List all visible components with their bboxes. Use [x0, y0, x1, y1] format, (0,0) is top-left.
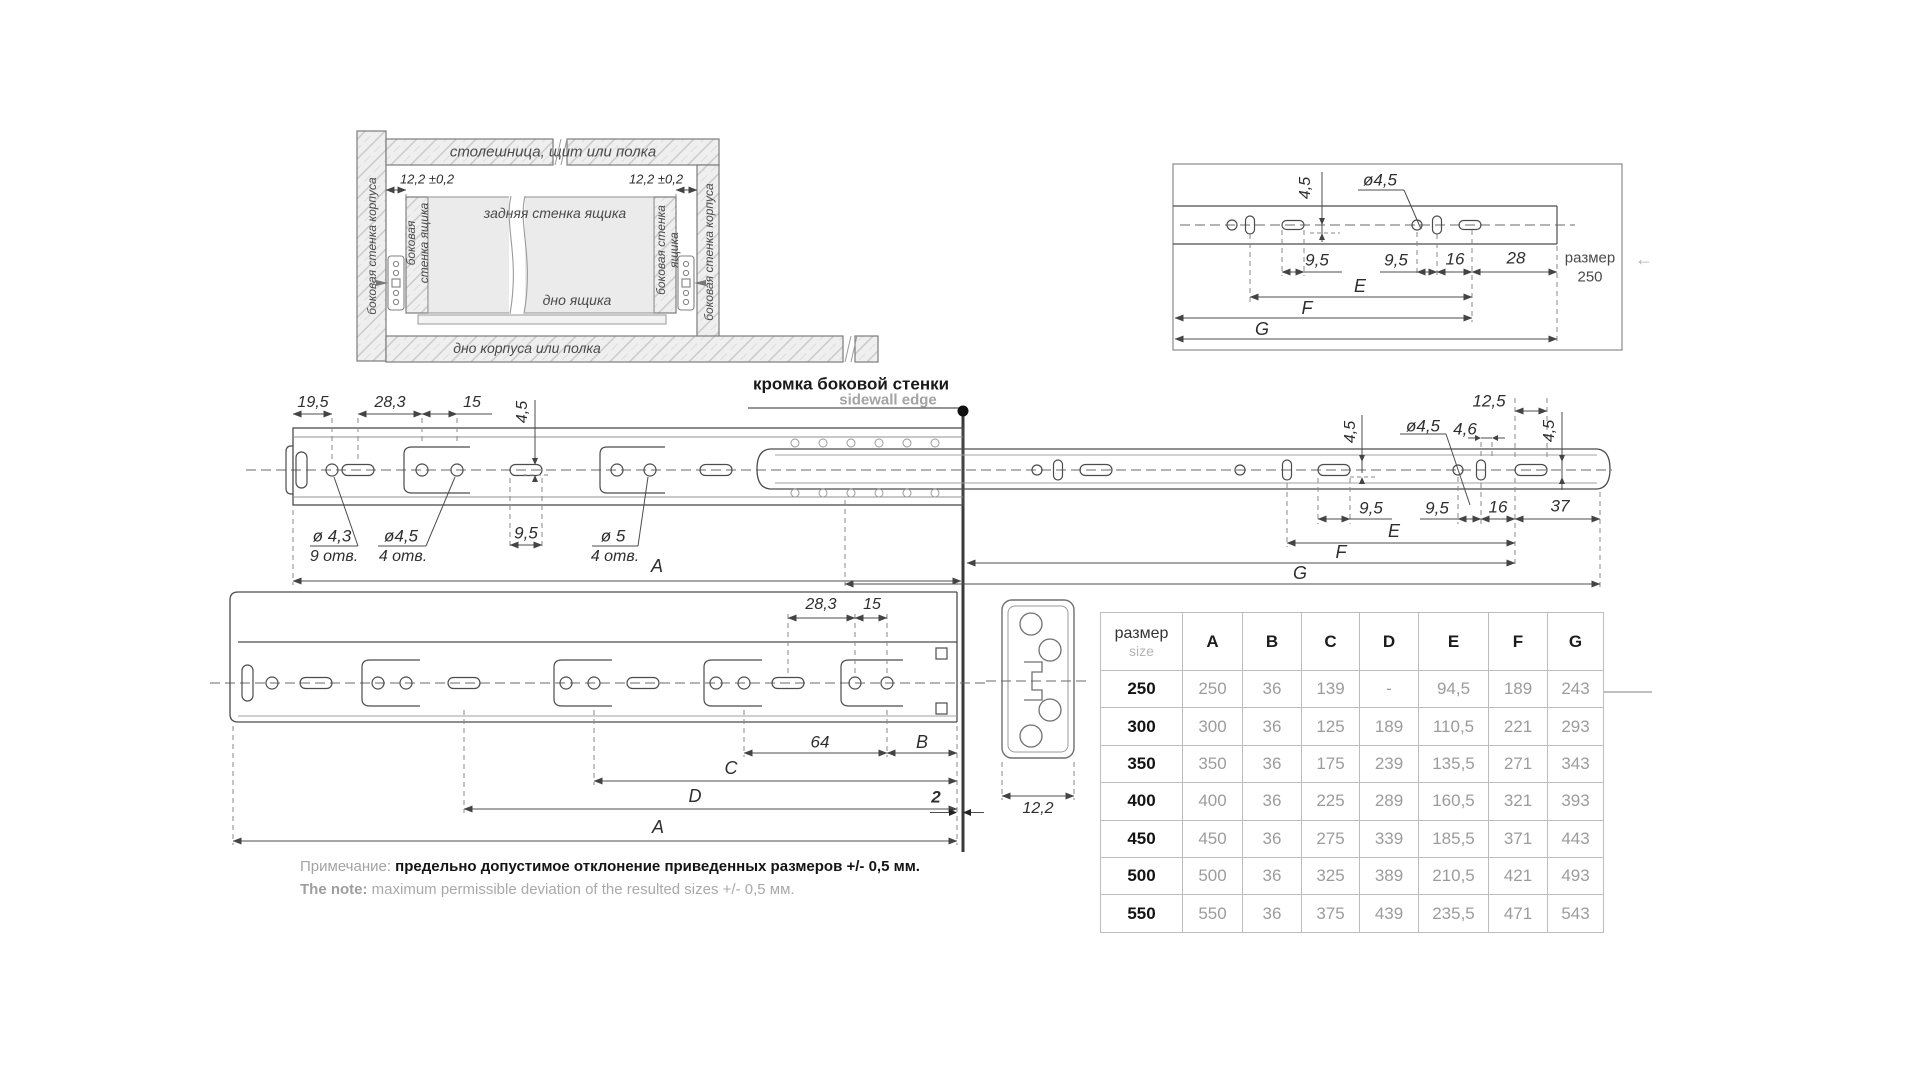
header-size-en: size: [1101, 643, 1182, 659]
cell-a: 250: [1183, 671, 1243, 708]
cell-e: 160,5: [1419, 783, 1489, 820]
table-row: 400 400 36 225 289 160,5 321 393: [1101, 783, 1604, 820]
cell-d: -: [1360, 671, 1419, 708]
detail-size-value: 250: [1577, 270, 1602, 285]
cell-d: 289: [1360, 783, 1419, 820]
cell-a: 450: [1183, 820, 1243, 857]
note-text-ru: предельно допустимое отклонение приведен…: [395, 858, 842, 875]
detail-dim-9-5b: 9,5: [1384, 252, 1408, 269]
cell-c: 175: [1302, 745, 1360, 782]
label-drawer-back: задняя стенка ящика: [484, 206, 626, 220]
open-dim-19-5: 19,5: [297, 395, 328, 411]
table-row: 300 300 36 125 189 110,5 221 293: [1101, 708, 1604, 745]
cell-g: 293: [1548, 708, 1604, 745]
note-text-en: maximum permissible deviation of the res…: [372, 881, 719, 898]
cell-e: 94,5: [1419, 671, 1489, 708]
open-dim-12-5: 12,5: [1472, 393, 1505, 410]
cell-b: 36: [1243, 671, 1302, 708]
table-header-row: размер size A B C D E F G: [1101, 613, 1604, 671]
dim-offset-left: 12,2 ±0,2: [400, 173, 454, 186]
note-label-ru: Примечание:: [300, 858, 391, 875]
open-dim-28-3: 28,3: [374, 395, 405, 411]
cell-size: 250: [1101, 671, 1183, 708]
open-dim-r-dia45: ø4,5: [1406, 418, 1440, 435]
cell-c: 275: [1302, 820, 1360, 857]
cell-c: 125: [1302, 708, 1360, 745]
detail-dim-E: E: [1354, 277, 1366, 295]
open-dim-A: A: [651, 557, 663, 575]
detail-dim-dia45: ø4,5: [1363, 172, 1397, 189]
cell-g: 343: [1548, 745, 1604, 782]
label-drawer-side-left-1: боковая: [405, 221, 417, 266]
cell-g: 393: [1548, 783, 1604, 820]
open-dia-5: ø 5: [601, 528, 626, 545]
open-dim-4-6: 4,6: [1453, 421, 1477, 438]
open-dim-4-5: 4,5: [515, 401, 531, 423]
label-sidewall-edge-ru: кромка боковой стенки: [753, 376, 949, 393]
note-tolerance-en: +/- 0,5 мм.: [723, 881, 795, 898]
cell-d: 439: [1360, 895, 1419, 932]
note-label-en: The note:: [300, 881, 368, 898]
open-dia-4-5: ø4,5: [384, 528, 418, 545]
note-block: Примечание: предельно допустимое отклоне…: [300, 855, 920, 902]
table-row: 550 550 36 375 439 235,5 471 543: [1101, 895, 1604, 932]
cell-e: 235,5: [1419, 895, 1489, 932]
cell-e: 110,5: [1419, 708, 1489, 745]
closed-dim-B: B: [916, 733, 928, 751]
cell-b: 36: [1243, 745, 1302, 782]
cell-e: 135,5: [1419, 745, 1489, 782]
label-cabinet-bottom: дно корпуса или полка: [453, 341, 601, 355]
cell-f: 321: [1489, 783, 1548, 820]
cell-b: 36: [1243, 708, 1302, 745]
open-dim-r-4-5r: 4,5: [1542, 420, 1558, 442]
cell-g: 493: [1548, 857, 1604, 894]
label-sidewall-edge-en: sidewall edge: [839, 393, 937, 408]
label-cabinet-side-right: боковая стенка корпуса: [703, 183, 715, 320]
detail-dim-28: 28: [1507, 250, 1526, 267]
header-size: размер size: [1101, 613, 1183, 671]
detail-dim-4-5: 4,5: [1298, 177, 1314, 199]
table-row: 350 350 36 175 239 135,5 271 343: [1101, 745, 1604, 782]
cell-f: 189: [1489, 671, 1548, 708]
label-drawer-side-left-2: стенка ящика: [418, 203, 430, 284]
cell-a: 550: [1183, 895, 1243, 932]
header-size-ru: размер: [1101, 625, 1182, 643]
cell-g: 243: [1548, 671, 1604, 708]
label-drawer-side-right-1: боковая стенка: [655, 205, 667, 295]
open-dim-G: G: [1293, 564, 1307, 582]
cell-b: 36: [1243, 895, 1302, 932]
label-top-panel: столешница, щит или полка: [450, 145, 656, 160]
open-dim-E: E: [1388, 522, 1400, 540]
cell-size: 500: [1101, 857, 1183, 894]
cell-d: 239: [1360, 745, 1419, 782]
cell-f: 371: [1489, 820, 1548, 857]
header-col-G: G: [1548, 613, 1604, 671]
closed-dim-C: C: [725, 759, 738, 777]
cell-f: 471: [1489, 895, 1548, 932]
header-col-D: D: [1360, 613, 1419, 671]
open-dim-F: F: [1336, 543, 1347, 561]
header-col-E: E: [1419, 613, 1489, 671]
left-arrow-icon: ←: [1635, 250, 1653, 268]
table-row: 450 450 36 275 339 185,5 371 443: [1101, 820, 1604, 857]
profile-dim-12-2: 12,2: [1022, 801, 1053, 817]
cell-c: 225: [1302, 783, 1360, 820]
cell-size: 450: [1101, 820, 1183, 857]
closed-dim-D: D: [689, 787, 702, 805]
closed-dim-gap-2: 2: [931, 789, 940, 806]
technical-drawing-linework: [0, 0, 1920, 1080]
cell-d: 389: [1360, 857, 1419, 894]
cell-c: 375: [1302, 895, 1360, 932]
cell-a: 400: [1183, 783, 1243, 820]
cell-size: 350: [1101, 745, 1183, 782]
open-dim-r-37: 37: [1551, 498, 1570, 515]
label-drawer-bottom: дно ящика: [543, 293, 612, 307]
open-dim-r-9-5a: 9,5: [1359, 500, 1383, 517]
detail-dim-16: 16: [1446, 251, 1465, 268]
open-dim-r-16: 16: [1489, 499, 1508, 516]
open-dim-15: 15: [463, 395, 481, 411]
header-col-B: B: [1243, 613, 1302, 671]
detail-dim-9-5a: 9,5: [1305, 252, 1329, 269]
drawing-sheet: столешница, щит или полка 12,2 ±0,2 12,2…: [0, 0, 1920, 1080]
open-dia-4-3-count: 9 отв.: [310, 549, 358, 565]
header-col-C: C: [1302, 613, 1360, 671]
cell-f: 271: [1489, 745, 1548, 782]
cell-a: 300: [1183, 708, 1243, 745]
cell-g: 443: [1548, 820, 1604, 857]
label-cabinet-side-left: боковая стенка корпуса: [366, 177, 378, 314]
cell-f: 421: [1489, 857, 1548, 894]
open-dia-4-3: ø 4,3: [313, 528, 352, 545]
note-tolerance-ru: +/- 0,5 мм.: [847, 858, 920, 875]
cell-size: 300: [1101, 708, 1183, 745]
open-dim-r-4-5l: 4,5: [1343, 421, 1359, 443]
closed-dim-A: A: [652, 818, 664, 836]
label-drawer-side-right-2: ящика: [668, 232, 680, 268]
open-dia-5-count: 4 отв.: [591, 549, 639, 565]
cell-b: 36: [1243, 783, 1302, 820]
cell-size: 550: [1101, 895, 1183, 932]
open-dia-4-5-count: 4 отв.: [379, 549, 427, 565]
cell-d: 339: [1360, 820, 1419, 857]
cell-c: 139: [1302, 671, 1360, 708]
cell-d: 189: [1360, 708, 1419, 745]
cell-e: 210,5: [1419, 857, 1489, 894]
cell-b: 36: [1243, 857, 1302, 894]
cell-f: 221: [1489, 708, 1548, 745]
closed-dim-64: 64: [811, 734, 830, 751]
cell-g: 543: [1548, 895, 1604, 932]
size-spec-table: размер size A B C D E F G 250 250 36 139…: [1100, 612, 1604, 933]
table-row: 250 250 36 139 - 94,5 189 243: [1101, 671, 1604, 708]
open-dim-9-5: 9,5: [514, 525, 538, 542]
detail-size-label: размер: [1565, 251, 1615, 266]
table-row: 500 500 36 325 389 210,5 421 493: [1101, 857, 1604, 894]
detail-dim-F: F: [1302, 299, 1313, 317]
cell-e: 185,5: [1419, 820, 1489, 857]
cell-b: 36: [1243, 820, 1302, 857]
header-col-F: F: [1489, 613, 1548, 671]
cell-c: 325: [1302, 857, 1360, 894]
open-dim-r-9-5b: 9,5: [1425, 500, 1449, 517]
cell-size: 400: [1101, 783, 1183, 820]
cell-a: 350: [1183, 745, 1243, 782]
closed-dim-28-3: 28,3: [805, 597, 836, 613]
header-col-A: A: [1183, 613, 1243, 671]
dim-offset-right: 12,2 ±0,2: [629, 173, 683, 186]
cell-a: 500: [1183, 857, 1243, 894]
detail-dim-G: G: [1255, 320, 1269, 338]
closed-dim-15: 15: [863, 597, 881, 613]
